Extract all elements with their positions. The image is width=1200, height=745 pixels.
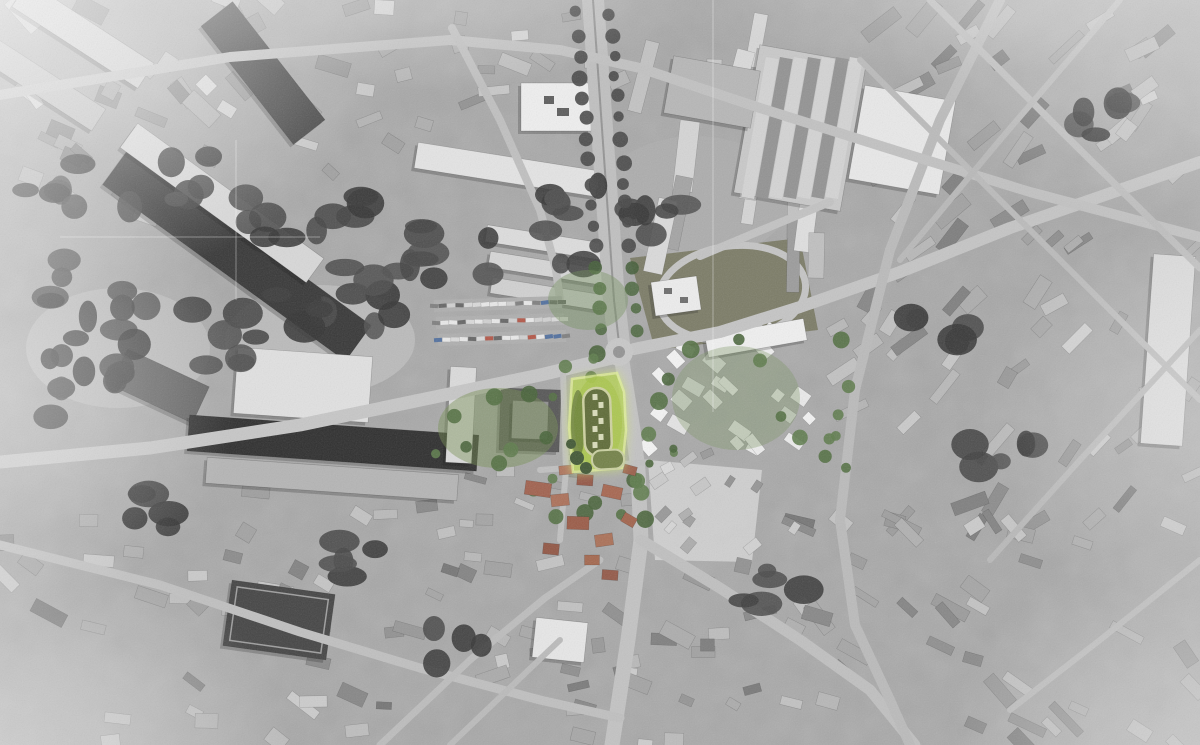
photo-grain: [0, 0, 1200, 745]
map-root-layer: [0, 0, 1200, 745]
aerial-photo-svg: [0, 0, 1200, 745]
aerial-site-plan: [0, 0, 1200, 745]
grain-layer: [0, 0, 1200, 745]
